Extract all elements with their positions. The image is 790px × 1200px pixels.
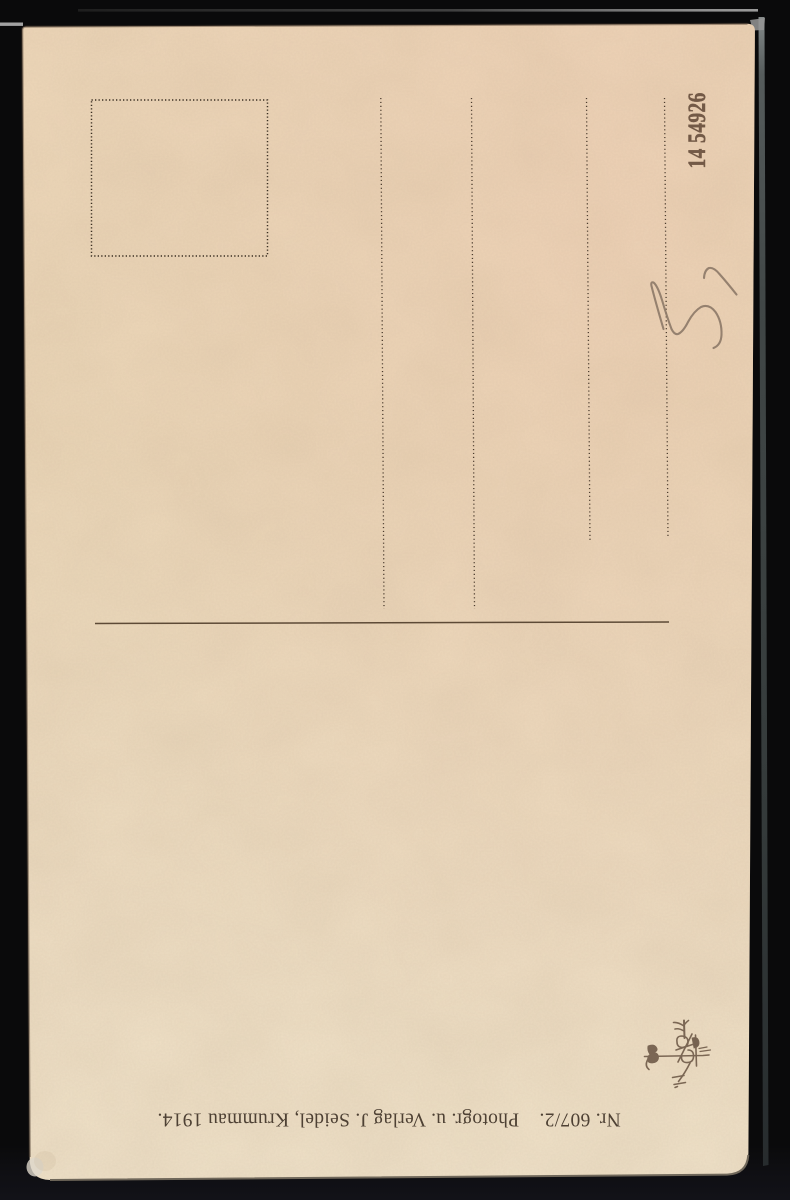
svg-text:14 54926: 14 54926 — [683, 92, 711, 168]
svg-text:Nr. 607/2. Photogr. u. Verlag: Nr. 607/2. Photogr. u. Verlag J. Seidel,… — [157, 1109, 621, 1130]
